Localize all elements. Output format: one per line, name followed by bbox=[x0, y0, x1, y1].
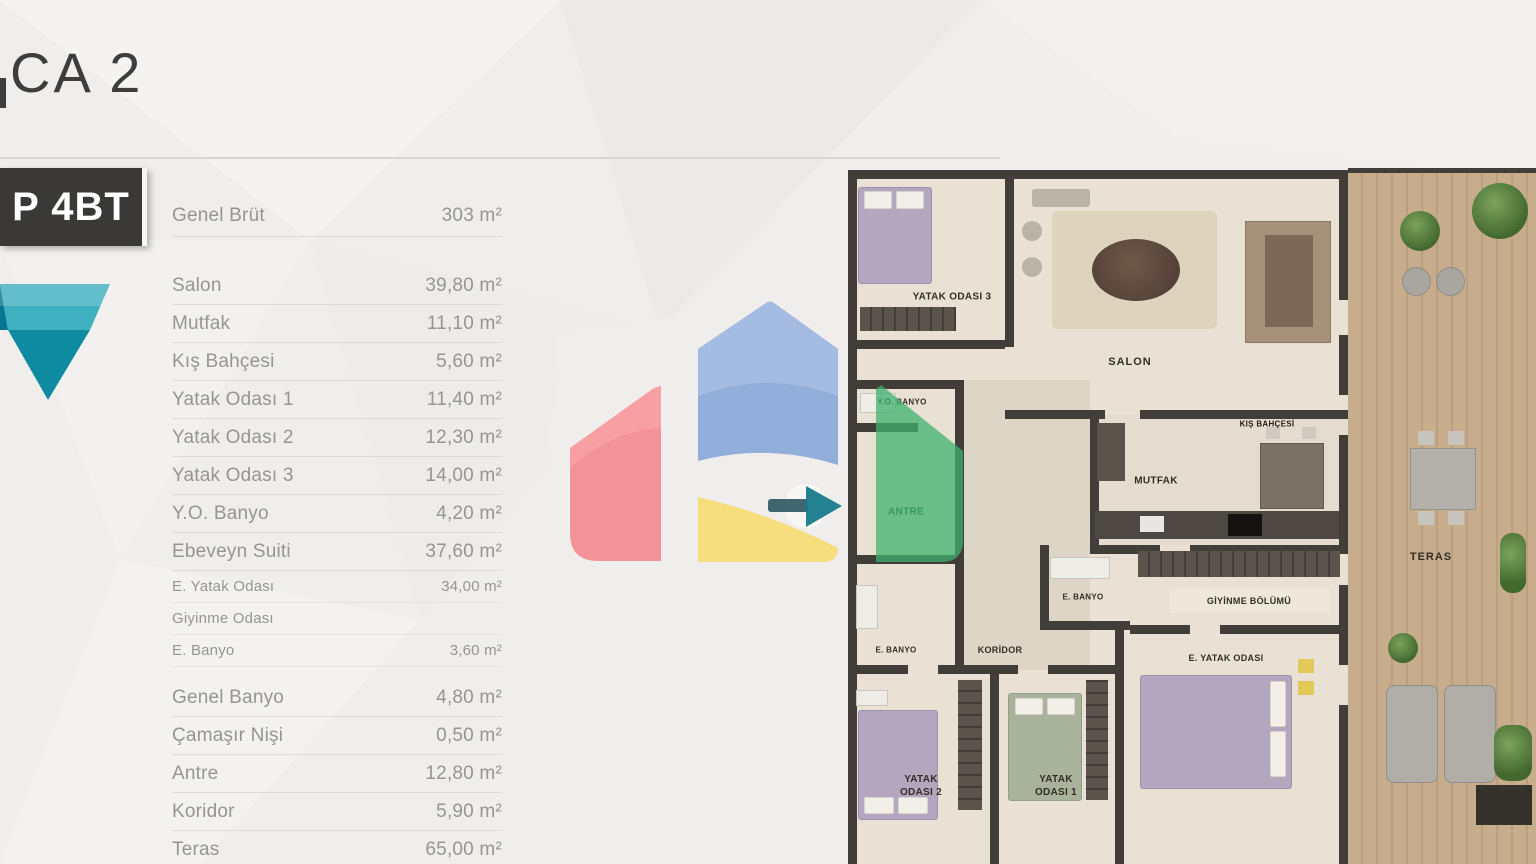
area-label: Yatak Odası 2 bbox=[172, 427, 294, 449]
room-label: MUTFAK bbox=[1134, 476, 1177, 487]
area-value: 12,30 m² bbox=[425, 427, 502, 449]
table-row: Koridor5,90 m² bbox=[172, 793, 502, 831]
table-row: Mutfak11,10 m² bbox=[172, 305, 502, 343]
area-value: 12,80 m² bbox=[425, 763, 502, 785]
table-row: Kış Bahçesi5,60 m² bbox=[172, 343, 502, 381]
wall-segment bbox=[1339, 435, 1348, 545]
area-label: Genel Brüt bbox=[172, 205, 265, 227]
table-row: Yatak Odası 314,00 m² bbox=[172, 457, 502, 495]
room-label: E. BANYO bbox=[1062, 593, 1103, 602]
wall-segment bbox=[1130, 625, 1190, 634]
table-row: Teras65,00 m² bbox=[172, 831, 502, 864]
header-divider bbox=[0, 157, 1000, 159]
wardrobe bbox=[958, 680, 982, 810]
wall-segment bbox=[1040, 545, 1049, 630]
area-label: Kış Bahçesi bbox=[172, 351, 275, 373]
area-value: 65,00 m² bbox=[425, 839, 502, 861]
room-label: YATAK ODASI 1 bbox=[1026, 773, 1086, 799]
room-label: KORİDOR bbox=[978, 645, 1023, 655]
area-table: Genel Brüt303 m² Salon39,80 m² Mutfak11,… bbox=[172, 196, 502, 864]
wall-segment bbox=[848, 380, 964, 389]
room-label: E. YATAK ODASI bbox=[1189, 653, 1264, 663]
wall-segment bbox=[955, 380, 964, 665]
wall-segment bbox=[1339, 585, 1348, 665]
plant bbox=[1472, 183, 1528, 239]
area-label: Koridor bbox=[172, 801, 235, 823]
dining-table bbox=[1260, 443, 1324, 509]
wall-segment bbox=[938, 665, 1018, 674]
armchair bbox=[1022, 257, 1042, 277]
wall-segment bbox=[848, 423, 918, 432]
round-chair bbox=[1436, 267, 1465, 296]
pillow bbox=[1015, 698, 1043, 715]
kitchen-fridge bbox=[1097, 423, 1125, 481]
table-row: Giyinme Odası bbox=[172, 603, 502, 635]
wall-segment bbox=[1339, 335, 1348, 395]
terrace-chair bbox=[1418, 511, 1434, 525]
kitchen-sink bbox=[1140, 516, 1164, 532]
pillow bbox=[1047, 698, 1075, 715]
area-label: Genel Banyo bbox=[172, 687, 284, 709]
table-row: Yatak Odası 111,40 m² bbox=[172, 381, 502, 419]
round-chair bbox=[1402, 267, 1431, 296]
terrace-table bbox=[1410, 448, 1476, 510]
pillow bbox=[1270, 681, 1286, 727]
room-label: E. BANYO bbox=[875, 646, 916, 655]
pillow bbox=[864, 797, 894, 814]
table-row: E. Banyo3,60 m² bbox=[172, 635, 502, 667]
terrace-chair bbox=[1448, 511, 1464, 525]
area-label: Çamaşır Nişi bbox=[172, 725, 283, 747]
area-value: 39,80 m² bbox=[425, 275, 502, 297]
area-label: Teras bbox=[172, 839, 219, 861]
table-row: Genel Banyo4,80 m² bbox=[172, 679, 502, 717]
wall-segment bbox=[1339, 170, 1348, 300]
wall-segment bbox=[1048, 665, 1115, 674]
room-label: YATAK ODASI 3 bbox=[913, 292, 992, 303]
area-label: Salon bbox=[172, 275, 222, 297]
pillow bbox=[898, 797, 928, 814]
area-value: 4,80 m² bbox=[436, 687, 502, 709]
area-value: 11,10 m² bbox=[427, 313, 502, 335]
wardrobe bbox=[1138, 551, 1340, 577]
cushion bbox=[1298, 659, 1314, 673]
wall-segment bbox=[848, 170, 1348, 179]
wall-segment bbox=[848, 340, 1005, 349]
wall-segment bbox=[1220, 625, 1348, 634]
area-label: Ebeveyn Suiti bbox=[172, 541, 291, 563]
unit-type-badge: P 4BT bbox=[0, 168, 147, 246]
kitchen-counter bbox=[1095, 511, 1339, 539]
armchair bbox=[1022, 221, 1042, 241]
room-label: SALON bbox=[1108, 356, 1152, 368]
table-row: Antre12,80 m² bbox=[172, 755, 502, 793]
wall-segment bbox=[1115, 625, 1124, 864]
room-label: GİYİNME BÖLÜMÜ bbox=[1207, 596, 1291, 606]
room-label: ANTRE bbox=[888, 507, 924, 518]
room-label: TERAS bbox=[1410, 551, 1452, 563]
wall-segment bbox=[1339, 705, 1348, 864]
bath-fixture bbox=[856, 585, 878, 629]
bath-fixture bbox=[1050, 557, 1110, 579]
table-row: Genel Brüt303 m² bbox=[172, 196, 502, 237]
area-label: Y.O. Banyo bbox=[172, 503, 269, 525]
table-row: Y.O. Banyo4,20 m² bbox=[172, 495, 502, 533]
room-label: YATAK ODASI 2 bbox=[891, 773, 951, 799]
table-row: Ebeveyn Suiti37,60 m² bbox=[172, 533, 502, 571]
bath-fixture bbox=[856, 690, 888, 706]
brand-diamond-icon bbox=[0, 282, 125, 407]
kitchen-stove bbox=[1228, 514, 1262, 536]
wardrobe bbox=[1086, 680, 1108, 800]
area-value: 5,90 m² bbox=[436, 801, 502, 823]
table-row: E. Yatak Odası34,00 m² bbox=[172, 571, 502, 603]
pillow bbox=[1270, 731, 1286, 777]
plant bbox=[1500, 533, 1526, 593]
area-label: Yatak Odası 3 bbox=[172, 465, 294, 487]
pillow bbox=[864, 191, 892, 209]
table-row: Yatak Odası 212,30 m² bbox=[172, 419, 502, 457]
wardrobe bbox=[860, 307, 956, 331]
area-label: Antre bbox=[172, 763, 218, 785]
plant bbox=[1494, 725, 1532, 781]
lounge-chair bbox=[1444, 685, 1496, 783]
wall-segment bbox=[990, 674, 999, 864]
wall-segment bbox=[848, 665, 908, 674]
table-row: Çamaşır Nişi0,50 m² bbox=[172, 717, 502, 755]
room-label: Y.O. BANYO bbox=[877, 398, 926, 407]
room-label: KIŞ BAHÇESİ bbox=[1240, 420, 1295, 429]
terrace-chair bbox=[1448, 431, 1464, 445]
page-title: CA 2 bbox=[10, 40, 143, 105]
lounge-chair bbox=[1386, 685, 1438, 783]
wall-segment bbox=[848, 555, 964, 564]
area-label: E. Yatak Odası bbox=[172, 578, 274, 595]
area-value: 5,60 m² bbox=[436, 351, 502, 373]
page: CA 2 P 4BT Genel Brüt303 m² Salon39,80 m… bbox=[0, 0, 1536, 864]
unit-type-label: P 4BT bbox=[12, 185, 130, 230]
area-value: 14,00 m² bbox=[425, 465, 502, 487]
terrace-parapet bbox=[1348, 168, 1536, 173]
dining-chair bbox=[1302, 427, 1316, 439]
area-value: 4,20 m² bbox=[436, 503, 502, 525]
floor-plan: YATAK ODASI 3 SALON KIŞ BAHÇESİ MUTFAK Y… bbox=[840, 165, 1536, 864]
area-label: Mutfak bbox=[172, 313, 230, 335]
dining-chair bbox=[1266, 427, 1280, 439]
title-cutoff-fragment bbox=[0, 78, 6, 108]
area-label: E. Banyo bbox=[172, 642, 234, 659]
area-label: Giyinme Odası bbox=[172, 610, 274, 627]
area-value: 303 m² bbox=[442, 205, 502, 227]
wall-segment bbox=[848, 170, 857, 864]
area-value: 34,00 m² bbox=[441, 578, 502, 595]
sofa bbox=[1032, 189, 1090, 207]
area-label: Yatak Odası 1 bbox=[172, 389, 294, 411]
table-row: Salon39,80 m² bbox=[172, 267, 502, 305]
area-value: 0,50 m² bbox=[436, 725, 502, 747]
planter-box bbox=[1476, 785, 1532, 825]
pillow bbox=[896, 191, 924, 209]
terrace-chair bbox=[1418, 431, 1434, 445]
area-value: 3,60 m² bbox=[450, 642, 502, 659]
wall-segment bbox=[1005, 410, 1105, 419]
wall-segment bbox=[1140, 410, 1348, 419]
plant bbox=[1400, 211, 1440, 251]
area-value: 11,40 m² bbox=[427, 389, 502, 411]
tv-unit-top bbox=[1265, 235, 1313, 327]
plant bbox=[1388, 633, 1418, 663]
area-value: 37,60 m² bbox=[425, 541, 502, 563]
wall-segment bbox=[1005, 179, 1014, 347]
salon-rug-oval bbox=[1092, 239, 1180, 301]
cushion bbox=[1298, 681, 1314, 695]
